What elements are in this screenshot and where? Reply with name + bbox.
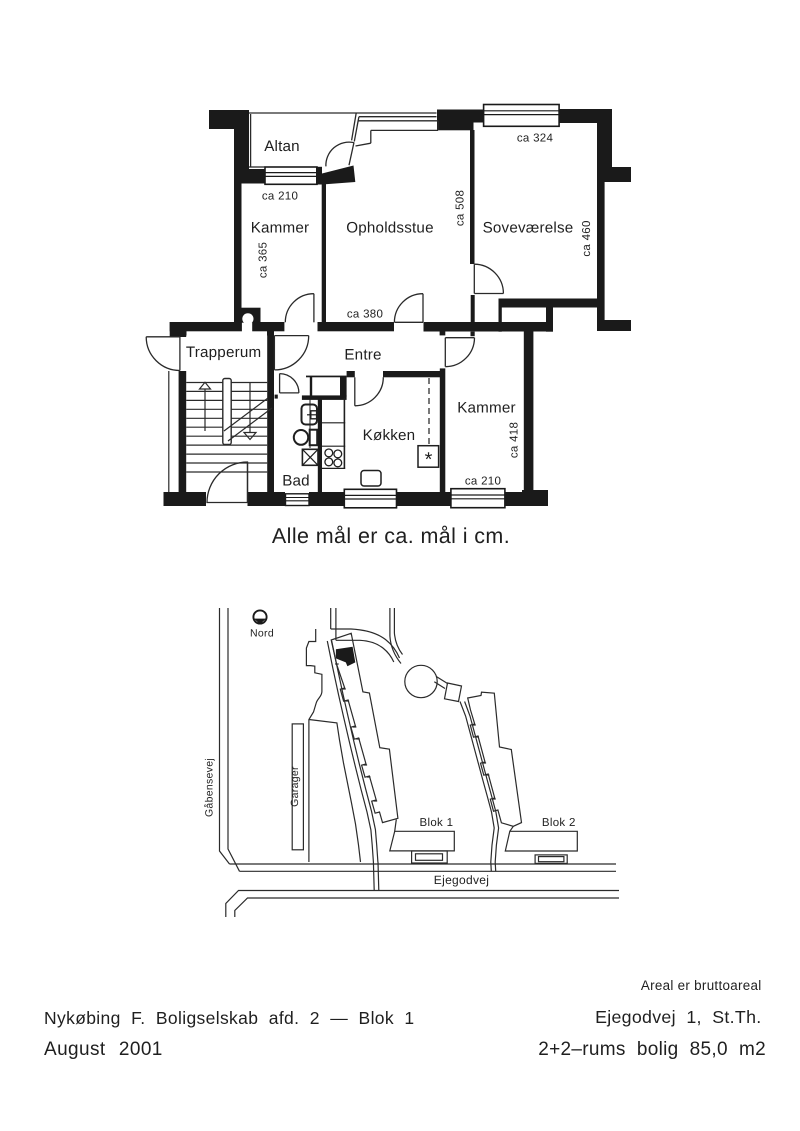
svg-text:Garager: Garager <box>289 766 301 807</box>
svg-text:Blok 1: Blok 1 <box>420 817 454 829</box>
svg-text:Gåbensevej: Gåbensevej <box>204 758 216 817</box>
svg-text:Nord: Nord <box>250 628 274 640</box>
svg-text:Ejegodvej: Ejegodvej <box>434 873 489 887</box>
svg-text:Blok 2: Blok 2 <box>542 817 576 829</box>
